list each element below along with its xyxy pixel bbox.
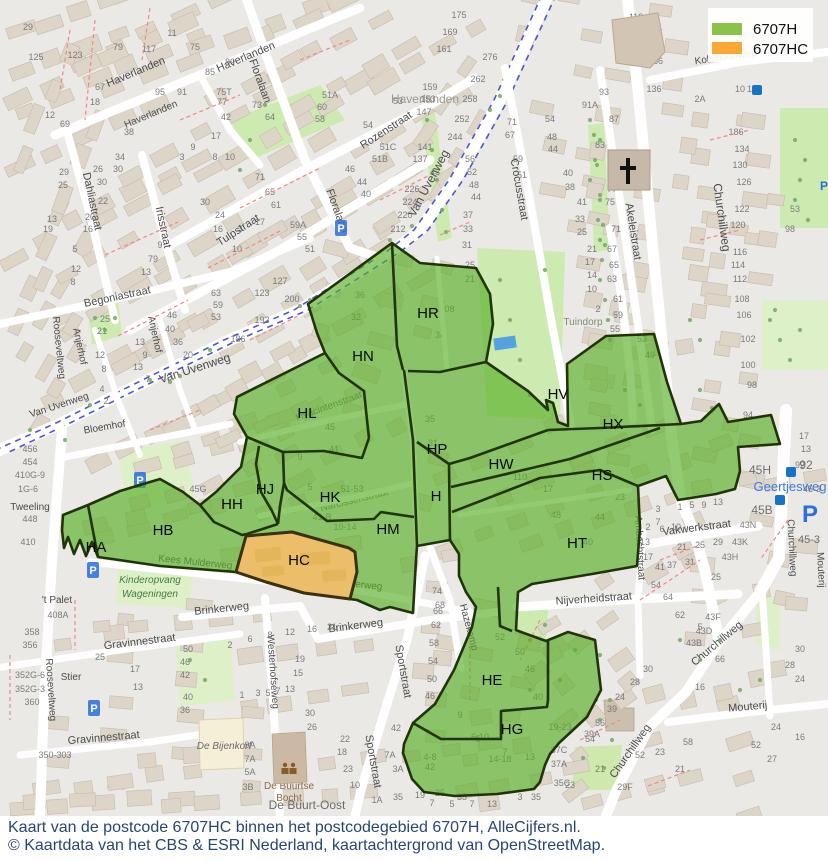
- svg-text:25: 25: [58, 180, 68, 190]
- svg-text:3B: 3B: [242, 782, 253, 792]
- svg-text:P: P: [820, 179, 828, 193]
- svg-text:85: 85: [205, 67, 215, 77]
- svg-text:46: 46: [425, 691, 435, 701]
- svg-text:71: 71: [255, 172, 265, 182]
- svg-text:37A: 37A: [551, 759, 567, 769]
- svg-text:35C: 35C: [554, 778, 571, 788]
- svg-text:18: 18: [90, 97, 100, 107]
- svg-text:352G-6: 352G-6: [15, 670, 45, 680]
- svg-text:P: P: [337, 223, 344, 235]
- svg-text:51B: 51B: [372, 154, 388, 164]
- svg-text:39A: 39A: [584, 729, 600, 739]
- svg-text:5: 5: [265, 688, 270, 698]
- svg-text:44: 44: [548, 144, 558, 154]
- svg-text:102: 102: [740, 334, 755, 344]
- svg-text:23: 23: [655, 747, 665, 757]
- svg-text:9: 9: [701, 500, 706, 510]
- svg-text:98: 98: [747, 380, 757, 390]
- svg-text:HE: HE: [482, 672, 503, 689]
- svg-text:69: 69: [60, 119, 70, 129]
- svg-text:448: 448: [22, 514, 37, 524]
- svg-text:12: 12: [95, 350, 105, 360]
- svg-text:258: 258: [462, 94, 477, 104]
- svg-text:3: 3: [179, 152, 184, 162]
- svg-text:220: 220: [397, 210, 412, 220]
- svg-text:5A: 5A: [244, 767, 255, 777]
- svg-text:De Bijenkorf: De Bijenkorf: [197, 741, 253, 752]
- svg-text:Mouterij: Mouterij: [814, 552, 827, 588]
- svg-text:79: 79: [148, 254, 158, 264]
- svg-text:55: 55: [610, 324, 620, 334]
- svg-text:52: 52: [467, 167, 477, 177]
- svg-text:44: 44: [357, 177, 367, 187]
- svg-text:40: 40: [183, 692, 193, 702]
- svg-text:93: 93: [599, 87, 609, 97]
- svg-text:61: 61: [613, 294, 623, 304]
- svg-text:29: 29: [23, 22, 33, 32]
- svg-text:43F: 43F: [705, 612, 721, 622]
- svg-text:39: 39: [607, 704, 617, 714]
- svg-text:30: 30: [97, 177, 107, 187]
- svg-text:13: 13: [285, 684, 295, 694]
- svg-text:16: 16: [213, 224, 223, 234]
- svg-text:HV: HV: [548, 386, 569, 403]
- svg-text:HR: HR: [417, 305, 439, 322]
- svg-text:67: 67: [607, 244, 617, 254]
- svg-text:11: 11: [167, 28, 176, 38]
- svg-text:4: 4: [99, 384, 104, 394]
- svg-text:65: 65: [609, 260, 619, 270]
- svg-text:130: 130: [732, 160, 747, 170]
- svg-text:45B: 45B: [751, 503, 772, 517]
- svg-text:28: 28: [630, 677, 640, 687]
- svg-text:HN: HN: [352, 348, 374, 365]
- svg-text:30: 30: [795, 644, 805, 654]
- svg-text:14: 14: [587, 270, 597, 280]
- svg-text:43N: 43N: [740, 520, 757, 530]
- svg-text:10: 10: [350, 780, 360, 790]
- svg-text:7: 7: [469, 799, 474, 809]
- svg-text:55: 55: [297, 232, 307, 242]
- svg-text:45-3: 45-3: [798, 534, 820, 546]
- svg-text:43K: 43K: [732, 537, 748, 547]
- svg-text:Tuindorp: Tuindorp: [563, 317, 603, 328]
- svg-text:HT: HT: [567, 535, 587, 552]
- svg-text:13: 13: [135, 337, 145, 347]
- svg-text:25: 25: [95, 652, 105, 662]
- svg-text:79: 79: [113, 42, 123, 52]
- svg-text:35: 35: [393, 792, 403, 802]
- svg-text:126: 126: [736, 177, 751, 187]
- svg-text:16: 16: [695, 682, 705, 692]
- svg-text:67: 67: [95, 82, 105, 92]
- svg-text:59: 59: [613, 310, 623, 320]
- svg-text:46: 46: [345, 164, 355, 174]
- svg-text:136: 136: [646, 84, 661, 94]
- svg-text:58: 58: [315, 114, 325, 124]
- svg-text:22: 22: [98, 196, 108, 206]
- svg-text:HL: HL: [297, 405, 316, 422]
- svg-text:89: 89: [225, 57, 235, 67]
- svg-text:59A: 59A: [290, 220, 306, 230]
- svg-text:116: 116: [733, 247, 747, 257]
- svg-text:25: 25: [100, 314, 110, 324]
- svg-text:360: 360: [24, 697, 39, 707]
- svg-text:127: 127: [272, 276, 287, 286]
- svg-text:62: 62: [431, 620, 441, 630]
- svg-text:9: 9: [142, 350, 147, 360]
- svg-text:73: 73: [252, 100, 262, 110]
- svg-text:106: 106: [736, 310, 751, 320]
- svg-text:64: 64: [663, 592, 673, 602]
- svg-text:16: 16: [795, 732, 805, 742]
- svg-text:91: 91: [177, 87, 187, 97]
- svg-text:186: 186: [728, 127, 743, 137]
- svg-text:51: 51: [305, 244, 315, 254]
- svg-text:59: 59: [513, 154, 523, 164]
- svg-text:29: 29: [59, 167, 69, 177]
- svg-text:175: 175: [451, 10, 466, 20]
- svg-text:17: 17: [643, 552, 653, 562]
- svg-text:56: 56: [465, 154, 475, 164]
- svg-text:21: 21: [327, 622, 337, 632]
- svg-text:7A: 7A: [384, 750, 395, 760]
- svg-text:100: 100: [740, 360, 755, 370]
- svg-text:212: 212: [390, 224, 405, 234]
- svg-text:1: 1: [677, 502, 682, 512]
- svg-text:24: 24: [795, 674, 805, 684]
- svg-text:64: 64: [265, 112, 275, 122]
- svg-text:19: 19: [43, 224, 53, 234]
- svg-text:63: 63: [607, 274, 617, 284]
- svg-text:3: 3: [237, 224, 242, 234]
- svg-text:3: 3: [655, 504, 660, 514]
- svg-text:42: 42: [221, 112, 231, 122]
- svg-text:16: 16: [307, 624, 317, 634]
- svg-text:HG: HG: [501, 721, 524, 738]
- svg-text:9: 9: [157, 240, 162, 250]
- svg-text:HS: HS: [592, 467, 613, 484]
- svg-text:41: 41: [577, 197, 587, 207]
- svg-text:108: 108: [734, 294, 749, 304]
- svg-text:91A: 91A: [582, 100, 598, 110]
- svg-text:186: 186: [230, 334, 245, 344]
- svg-text:50: 50: [183, 644, 193, 654]
- svg-text:6707HC: 6707HC: [753, 41, 808, 58]
- svg-text:75: 75: [605, 197, 615, 207]
- svg-text:46: 46: [180, 657, 190, 667]
- svg-text:10: 10: [735, 84, 745, 94]
- svg-text:28: 28: [785, 660, 795, 670]
- svg-text:125: 125: [28, 52, 43, 62]
- svg-text:13: 13: [640, 537, 650, 547]
- svg-text:15: 15: [293, 668, 303, 678]
- svg-text:71: 71: [507, 117, 517, 127]
- svg-text:46: 46: [167, 310, 177, 320]
- svg-text:51A: 51A: [322, 90, 338, 100]
- svg-text:67: 67: [505, 130, 515, 140]
- svg-text:65: 65: [265, 187, 275, 197]
- svg-text:16: 16: [83, 224, 93, 234]
- svg-text:26: 26: [93, 164, 103, 174]
- svg-text:Kinderopvang: Kinderopvang: [119, 575, 181, 586]
- svg-text:410G-9: 410G-9: [15, 470, 45, 480]
- svg-text:'t Palet: 't Palet: [42, 595, 72, 606]
- svg-text:13: 13: [133, 682, 143, 692]
- svg-text:31: 31: [462, 240, 472, 250]
- svg-text:3A: 3A: [392, 764, 403, 774]
- svg-text:2: 2: [227, 640, 232, 650]
- svg-text:153: 153: [420, 94, 435, 104]
- svg-text:75: 75: [190, 42, 200, 52]
- svg-text:192: 192: [254, 315, 269, 325]
- svg-text:45-3: 45-3: [803, 484, 821, 494]
- svg-text:137: 137: [412, 154, 427, 164]
- svg-text:59: 59: [213, 300, 223, 310]
- svg-text:HJ: HJ: [256, 481, 274, 498]
- svg-text:36: 36: [180, 705, 190, 715]
- svg-text:29: 29: [713, 537, 723, 547]
- svg-text:37: 37: [667, 560, 677, 570]
- svg-text:408A: 408A: [47, 610, 68, 620]
- svg-text:25: 25: [711, 572, 721, 582]
- svg-text:52: 52: [751, 740, 761, 750]
- svg-text:Kaart van de postcode 6707HC b: Kaart van de postcode 6707HC binnen het …: [8, 819, 581, 836]
- svg-text:54: 54: [545, 114, 555, 124]
- svg-text:244: 244: [447, 132, 462, 142]
- svg-text:17: 17: [255, 217, 265, 227]
- svg-text:17: 17: [799, 431, 809, 441]
- svg-text:276: 276: [482, 52, 497, 62]
- svg-text:33: 33: [463, 224, 473, 234]
- svg-text:HH: HH: [221, 496, 243, 513]
- svg-text:68: 68: [435, 600, 445, 610]
- svg-text:63: 63: [211, 288, 221, 298]
- svg-text:13: 13: [487, 799, 497, 809]
- svg-text:51C: 51C: [380, 142, 397, 152]
- svg-text:75T: 75T: [216, 87, 232, 97]
- svg-text:P: P: [90, 703, 97, 715]
- svg-text:29F: 29F: [617, 782, 633, 792]
- svg-text:60: 60: [317, 102, 327, 112]
- svg-text:53: 53: [393, 96, 403, 106]
- svg-text:54: 54: [651, 580, 661, 590]
- svg-text:5: 5: [689, 500, 694, 510]
- svg-text:36: 36: [173, 337, 183, 347]
- svg-text:43B: 43B: [686, 638, 702, 648]
- svg-text:224: 224: [402, 197, 417, 207]
- svg-text:42: 42: [180, 670, 190, 680]
- svg-text:21: 21: [587, 244, 597, 254]
- svg-text:52: 52: [635, 750, 645, 760]
- svg-text:20: 20: [85, 212, 95, 222]
- svg-text:87: 87: [609, 114, 619, 124]
- svg-text:31: 31: [685, 557, 695, 567]
- svg-text:45G: 45G: [189, 484, 206, 494]
- svg-text:58: 58: [429, 638, 439, 648]
- svg-text:30: 30: [200, 197, 210, 207]
- svg-text:123: 123: [254, 288, 269, 298]
- svg-text:12: 12: [45, 110, 55, 120]
- svg-text:5: 5: [449, 799, 454, 809]
- svg-text:262: 262: [470, 74, 485, 84]
- svg-text:H: H: [431, 488, 442, 505]
- svg-text:38: 38: [124, 127, 134, 137]
- svg-text:7: 7: [655, 517, 660, 527]
- svg-text:7: 7: [429, 798, 434, 808]
- svg-text:43: 43: [430, 167, 440, 177]
- svg-text:P: P: [89, 565, 96, 577]
- svg-text:HK: HK: [320, 489, 341, 506]
- svg-text:40: 40: [165, 324, 175, 334]
- svg-text:62: 62: [675, 610, 685, 620]
- svg-text:23: 23: [343, 764, 353, 774]
- svg-text:43D: 43D: [696, 626, 713, 636]
- svg-text:40: 40: [563, 168, 573, 178]
- svg-text:33: 33: [575, 214, 585, 224]
- svg-text:7: 7: [275, 686, 280, 696]
- svg-text:10: 10: [225, 152, 235, 162]
- svg-text:147: 147: [416, 107, 431, 117]
- svg-text:38: 38: [565, 182, 575, 192]
- svg-text:30: 30: [113, 164, 123, 174]
- svg-text:53: 53: [211, 312, 221, 322]
- svg-text:98: 98: [785, 224, 795, 234]
- svg-text:30: 30: [643, 664, 653, 674]
- svg-text:456: 456: [22, 444, 37, 454]
- svg-text:8: 8: [70, 277, 75, 287]
- svg-text:120: 120: [730, 220, 745, 230]
- svg-text:24: 24: [771, 722, 781, 732]
- svg-text:61: 61: [271, 200, 281, 210]
- svg-text:43H: 43H: [722, 552, 739, 562]
- svg-text:7A: 7A: [244, 754, 255, 764]
- svg-text:134: 134: [734, 144, 749, 154]
- svg-text:2: 2: [103, 396, 108, 406]
- svg-text:159: 159: [422, 82, 437, 92]
- svg-text:71: 71: [611, 224, 621, 234]
- svg-text:169: 169: [442, 27, 457, 37]
- svg-text:13: 13: [133, 362, 143, 372]
- svg-text:17: 17: [130, 664, 140, 674]
- svg-text:HA: HA: [86, 539, 107, 556]
- svg-text:45H: 45H: [749, 463, 771, 477]
- svg-text:51: 51: [517, 170, 527, 180]
- svg-text:3: 3: [517, 792, 522, 802]
- svg-text:48: 48: [547, 132, 557, 142]
- svg-text:HC: HC: [288, 552, 310, 569]
- svg-text:19: 19: [295, 654, 305, 664]
- svg-text:200: 200: [284, 294, 299, 304]
- svg-text:454: 454: [22, 457, 37, 467]
- svg-text:24: 24: [615, 692, 625, 702]
- svg-text:226: 226: [404, 184, 419, 194]
- svg-text:13: 13: [713, 497, 723, 507]
- svg-text:8: 8: [212, 152, 217, 162]
- svg-text:20: 20: [183, 350, 193, 360]
- svg-text:10: 10: [232, 244, 242, 254]
- svg-text:410: 410: [20, 537, 35, 547]
- svg-text:53: 53: [790, 204, 800, 214]
- svg-text:© Kaartdata van het CBS & ESRI: © Kaartdata van het CBS & ESRI Nederland…: [8, 837, 605, 854]
- svg-text:35: 35: [531, 792, 541, 802]
- svg-text:18: 18: [337, 747, 347, 757]
- svg-text:30: 30: [305, 708, 315, 718]
- svg-text:252: 252: [454, 114, 469, 124]
- svg-text:112: 112: [733, 274, 747, 284]
- svg-text:Wageningen: Wageningen: [122, 589, 178, 600]
- svg-text:21: 21: [677, 542, 687, 552]
- svg-text:95: 95: [155, 87, 165, 97]
- svg-text:352G-3: 352G-3: [15, 684, 45, 694]
- svg-text:40: 40: [361, 189, 371, 199]
- svg-text:123: 123: [67, 50, 82, 60]
- svg-text:8: 8: [101, 364, 106, 374]
- svg-text:50: 50: [427, 674, 437, 684]
- svg-text:10: 10: [671, 522, 681, 532]
- svg-text:3: 3: [255, 688, 260, 698]
- svg-text:1: 1: [239, 690, 244, 700]
- svg-text:122: 122: [734, 204, 749, 214]
- svg-text:34: 34: [115, 152, 125, 162]
- svg-text:5: 5: [72, 244, 77, 254]
- svg-text:58: 58: [683, 737, 693, 747]
- svg-text:48: 48: [469, 180, 479, 190]
- svg-text:8: 8: [267, 630, 272, 640]
- svg-text:13: 13: [141, 267, 151, 277]
- svg-text:HP: HP: [427, 441, 448, 458]
- svg-text:1G-6: 1G-6: [18, 484, 38, 494]
- svg-text:HX: HX: [603, 416, 624, 433]
- svg-text:37: 37: [463, 210, 473, 220]
- svg-text:Stier: Stier: [61, 672, 82, 683]
- svg-text:9: 9: [190, 142, 195, 152]
- svg-text:54: 54: [363, 120, 373, 130]
- svg-text:41: 41: [655, 562, 665, 572]
- svg-text:17: 17: [585, 257, 595, 267]
- svg-text:350-303: 350-303: [38, 750, 71, 760]
- svg-text:1A: 1A: [371, 795, 382, 805]
- svg-text:358: 358: [24, 627, 39, 637]
- svg-text:161: 161: [436, 44, 451, 54]
- svg-text:10: 10: [587, 284, 597, 294]
- svg-text:24: 24: [215, 210, 225, 220]
- svg-text:P: P: [802, 501, 818, 528]
- svg-text:2: 2: [645, 522, 650, 532]
- svg-text:25: 25: [577, 227, 587, 237]
- svg-text:HW: HW: [489, 456, 515, 473]
- svg-text:6: 6: [247, 634, 252, 644]
- svg-text:22: 22: [340, 734, 350, 744]
- svg-text:92: 92: [795, 460, 805, 470]
- svg-text:17: 17: [211, 131, 221, 141]
- svg-text:Tweeling: Tweeling: [10, 502, 49, 513]
- svg-text:74: 74: [432, 586, 442, 596]
- svg-text:13: 13: [47, 214, 57, 224]
- svg-text:HM: HM: [376, 521, 399, 538]
- svg-text:2A: 2A: [694, 94, 705, 104]
- svg-text:44: 44: [471, 192, 481, 202]
- svg-text:De Buurt-Oost: De Buurt-Oost: [269, 798, 346, 812]
- svg-text:27: 27: [767, 754, 777, 764]
- svg-text:13: 13: [801, 444, 811, 454]
- svg-text:12: 12: [285, 627, 295, 637]
- svg-text:54: 54: [428, 656, 438, 666]
- svg-text:66: 66: [715, 654, 725, 664]
- svg-text:42: 42: [391, 723, 401, 733]
- svg-text:26: 26: [307, 722, 317, 732]
- svg-text:114: 114: [731, 260, 745, 270]
